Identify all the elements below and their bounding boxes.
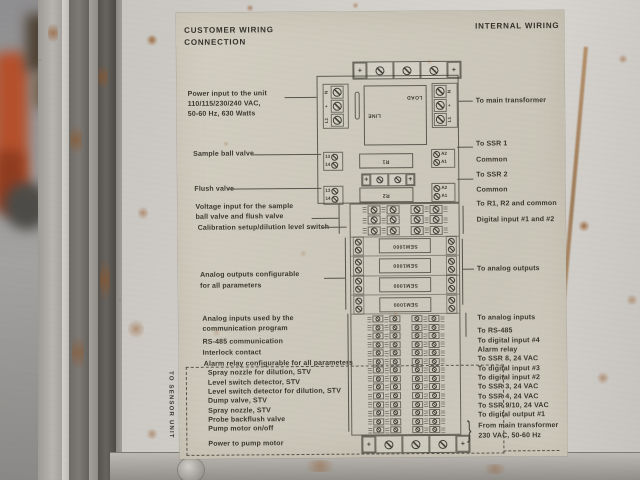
label-stain-3 xyxy=(212,329,220,337)
coil-label-a1: A1 xyxy=(441,194,447,199)
screw-icon xyxy=(355,247,362,254)
screw-terminal xyxy=(429,418,440,425)
screw-terminal xyxy=(428,392,439,399)
screw-icon xyxy=(431,359,436,364)
terminal-label-plus: + xyxy=(448,104,453,107)
to-ssr3-label: To SSR 3, 24 VAC xyxy=(478,383,539,391)
screw-terminal xyxy=(372,350,383,357)
to-ssr910-label: To SSR 9/10, 24 VAC xyxy=(478,402,549,410)
screw-icon xyxy=(375,66,384,75)
screw-icon xyxy=(415,402,420,407)
screw-terminal xyxy=(372,392,383,399)
screw-icon xyxy=(414,325,419,330)
screw-terminal xyxy=(390,409,401,416)
screw-terminal xyxy=(389,350,400,357)
screw-icon xyxy=(375,325,380,330)
contact-label-13: 13 xyxy=(325,189,330,194)
terminal-strip-dense-rows xyxy=(351,314,460,435)
screw-icon xyxy=(375,351,380,356)
isolator-module: SEM1000 xyxy=(351,275,459,295)
relay1-coil-block: A2 A1 xyxy=(431,149,455,168)
header-customer-wiring: CUSTOMER WIRING xyxy=(184,26,274,36)
screw-icon xyxy=(431,316,436,321)
screw-icon xyxy=(448,238,455,245)
screw-icon xyxy=(331,154,338,161)
screw-icon xyxy=(375,385,380,390)
screw-terminal xyxy=(372,384,383,391)
screw-terminal xyxy=(410,205,423,214)
screw-terminal xyxy=(389,384,400,391)
screw-terminal xyxy=(428,341,439,348)
screw-icon xyxy=(375,334,380,339)
sensor-item-3: Dump valve, STV xyxy=(208,397,267,405)
alarm-relay-label: Alarm relay xyxy=(478,346,518,354)
isolator-module-label: SEM1000 xyxy=(393,262,418,268)
screw-icon xyxy=(414,376,419,381)
terminal-label-n: N xyxy=(325,91,330,94)
power-module-body: LINE LOAD xyxy=(364,85,427,145)
seam-fitting xyxy=(178,458,204,480)
screw-icon xyxy=(448,277,455,284)
screw-icon xyxy=(414,393,419,398)
screw-icon xyxy=(392,325,397,330)
screw-terminal xyxy=(429,226,442,235)
screw-terminal xyxy=(410,226,423,235)
label-stain-2 xyxy=(300,250,307,257)
screw-icon xyxy=(392,342,397,347)
screw-icon xyxy=(429,65,438,74)
screw-terminal xyxy=(410,215,423,224)
screw-icon xyxy=(375,317,380,322)
screw-icon xyxy=(392,359,397,364)
digital-input-1-2-label: Digital input #1 and #2 xyxy=(477,216,555,224)
screw-icon xyxy=(436,101,445,110)
screw-icon xyxy=(414,333,419,338)
screw-icon xyxy=(392,368,397,373)
screw-terminal xyxy=(411,324,422,331)
terminal-row xyxy=(352,425,460,434)
contact-label-13: 13 xyxy=(325,155,330,160)
power-to-pump-motor-label: Power to pump motor xyxy=(208,440,283,448)
screw-terminal xyxy=(367,205,380,214)
screw-terminal xyxy=(411,349,422,356)
screw-terminal xyxy=(373,410,384,417)
terminal-label-l1: L1 xyxy=(325,118,330,123)
rust-spot-1 xyxy=(146,34,158,46)
screw-icon xyxy=(448,304,455,311)
bottom-terminal-strip xyxy=(361,435,470,454)
rust-seam-1 xyxy=(300,460,340,472)
screw-icon xyxy=(413,216,420,223)
screw-icon xyxy=(376,419,381,424)
line-label: LINE xyxy=(368,112,381,118)
bracket-analog-outputs-left xyxy=(345,238,347,310)
sensor-item-2: Level switch detector for dilution, STV xyxy=(208,388,341,397)
bracket-analog-outputs-right xyxy=(462,239,464,305)
screw-icon xyxy=(432,410,437,415)
endcap-plus-icon xyxy=(456,436,469,452)
endcap-plus-icon xyxy=(362,436,375,452)
dashed-bottom-right-segment xyxy=(503,450,559,451)
screw-terminal xyxy=(373,401,384,408)
screw-terminal xyxy=(372,358,383,365)
screw-terminal xyxy=(389,341,400,348)
wire-to-ssr1 xyxy=(457,147,473,148)
terminal-label-plus: + xyxy=(325,105,330,108)
screw-icon xyxy=(375,359,380,364)
screw-terminal xyxy=(429,205,442,214)
contact-label-14: 14 xyxy=(325,163,330,168)
screw-icon xyxy=(370,217,377,224)
screw-icon xyxy=(431,376,436,381)
screw-icon xyxy=(331,188,338,195)
calibration-label: Calibration setup/dilution level switch xyxy=(198,224,330,233)
rust-spot-10 xyxy=(618,54,628,64)
common2-label: Common xyxy=(476,186,507,194)
rust-spot-8 xyxy=(246,4,254,12)
screw-icon xyxy=(413,206,420,213)
screw-terminal xyxy=(386,226,399,235)
screw-icon xyxy=(392,376,397,381)
screw-terminal xyxy=(389,332,400,339)
screw-icon xyxy=(431,350,436,355)
screw-icon xyxy=(448,266,455,273)
wire-calibration xyxy=(322,227,347,228)
screw-icon xyxy=(375,342,380,347)
screw-terminal xyxy=(429,436,456,452)
coil-label-a2: A2 xyxy=(441,186,447,191)
screw-terminal xyxy=(402,436,429,452)
screw-terminal xyxy=(372,324,383,331)
screw-icon xyxy=(376,402,381,407)
to-digital-output-1-label: To digital output #1 xyxy=(478,411,545,419)
screw-terminal xyxy=(372,375,383,382)
sensor-item-0: Spray nozzle for dilution, STV xyxy=(208,369,311,377)
photo-of-wiring-label-panel: CUSTOMER WIRING CONNECTION INTERNAL WIRI… xyxy=(0,0,640,480)
bracket-digital-right xyxy=(463,206,464,234)
screw-icon xyxy=(415,410,420,415)
screw-icon xyxy=(393,419,398,424)
screw-icon xyxy=(332,102,341,111)
screw-terminal xyxy=(412,418,423,425)
wire-to-ssr2 xyxy=(457,179,473,180)
to-sensor-unit-vertical-label: TO SENSOR UNIT xyxy=(167,371,174,453)
wire-analog-outputs xyxy=(324,278,345,279)
to-rs485-label: To RS-485 xyxy=(477,327,512,335)
screw-icon xyxy=(402,66,411,75)
screw-icon xyxy=(370,206,377,213)
screw-icon xyxy=(355,297,362,304)
screw-terminal xyxy=(386,205,399,214)
relay2-contact-block: 13 14 xyxy=(323,186,343,205)
relay1-label: R1 xyxy=(383,158,390,164)
load-label: LOAD xyxy=(407,94,423,100)
main-terminal-strip: SEM1000 SEM1000 SEM1000 SEM1000 xyxy=(350,203,462,436)
screw-terminal xyxy=(428,358,439,365)
screw-icon xyxy=(432,427,437,432)
to-analog-outputs-label: To analog outputs xyxy=(477,265,540,273)
screw-icon xyxy=(355,266,362,273)
interlock-contact-label: Interlock contact xyxy=(203,349,262,357)
isolator-module-label: SEM1000 xyxy=(393,301,418,307)
rust-spot-7 xyxy=(596,372,610,384)
wire-power-input xyxy=(285,97,317,98)
screw-icon xyxy=(431,325,436,330)
rust-spot-9 xyxy=(352,2,359,9)
screw-terminal xyxy=(428,366,439,373)
screw-terminal xyxy=(386,216,399,225)
isolator-module-label: SEM1000 xyxy=(393,282,418,288)
screw-icon xyxy=(448,285,455,292)
screw-terminal xyxy=(389,367,400,374)
screw-icon xyxy=(376,411,381,416)
screw-icon xyxy=(389,227,396,234)
label-stain-5 xyxy=(426,59,432,65)
screw-icon xyxy=(331,196,338,203)
screw-icon xyxy=(392,351,397,356)
to-r1-r2-common-label: To R1, R2 and common xyxy=(476,200,556,208)
screw-terminal xyxy=(428,315,439,322)
analog-outputs-line2: for all parameters xyxy=(200,282,262,290)
isolator-module: SEM1000 xyxy=(351,295,459,315)
screw-icon xyxy=(433,193,440,200)
screw-terminal xyxy=(411,392,422,399)
isolator-modules: SEM1000 SEM1000 SEM1000 SEM1000 xyxy=(351,236,460,315)
wiring-label: CUSTOMER WIRING CONNECTION INTERNAL WIRI… xyxy=(176,10,567,459)
screw-icon xyxy=(384,440,393,449)
header-connection: CONNECTION xyxy=(184,38,246,47)
common1-label: Common xyxy=(476,156,507,164)
screw-terminal xyxy=(428,324,439,331)
endcap-plus-icon xyxy=(406,174,414,185)
screw-icon xyxy=(431,342,436,347)
wire-flush-valve xyxy=(227,188,321,190)
screw-icon xyxy=(431,333,436,338)
screw-icon xyxy=(436,87,445,96)
screw-icon xyxy=(355,239,362,246)
screw-icon xyxy=(392,385,397,390)
coil-label-a1: A1 xyxy=(441,160,447,165)
screw-icon xyxy=(432,402,437,407)
screw-icon xyxy=(414,367,419,372)
screw-icon xyxy=(448,246,455,253)
relay1-contact-block: 13 14 xyxy=(323,152,343,171)
screw-terminal xyxy=(428,332,439,339)
terminal-label-l1: L1 xyxy=(448,117,453,122)
screw-icon xyxy=(433,151,440,158)
screw-icon xyxy=(355,278,362,285)
rust-spot-11 xyxy=(626,294,638,306)
screw-terminal xyxy=(389,358,400,365)
screw-terminal xyxy=(367,226,380,235)
screw-icon xyxy=(431,384,436,389)
screw-terminal xyxy=(390,426,401,433)
relay2-label: R2 xyxy=(383,192,390,198)
screw-icon xyxy=(436,115,445,124)
from-main-transformer-line2: 230 VAC, 50-60 Hz xyxy=(478,432,541,440)
from-main-transformer-line1: From main transformer xyxy=(478,422,558,430)
rust-spot-2 xyxy=(138,205,148,221)
wire-sample-valve xyxy=(251,154,321,156)
power-input-line2: 110/115/230/240 VAC, xyxy=(188,100,261,108)
screw-icon xyxy=(432,227,439,234)
screw-terminal xyxy=(390,401,401,408)
screw-terminal xyxy=(367,216,380,225)
power-module-slot xyxy=(355,92,360,120)
screw-terminal xyxy=(372,333,383,340)
label-stain-1 xyxy=(223,141,229,147)
relay2-body: R2 xyxy=(359,187,413,202)
relay1-body: R1 xyxy=(359,153,413,168)
screw-icon xyxy=(414,359,419,364)
isolator-module: SEM1000 xyxy=(351,256,459,276)
rs485-communication-label: RS-485 communication xyxy=(203,338,283,346)
sensor-item-5: Probe backflush valve xyxy=(208,416,285,424)
screw-terminal xyxy=(411,332,422,339)
to-main-transformer-label: To main transformer xyxy=(476,97,546,105)
screw-terminal xyxy=(389,392,400,399)
to-ssr8-label: To SSR 8, 24 VAC xyxy=(478,355,539,363)
voltage-input-line2: ball valve and flush valve xyxy=(196,213,284,221)
relay2-coil-block: A2 A1 xyxy=(431,183,455,202)
screw-terminal xyxy=(411,315,422,322)
analog-outputs-line1: Analog outputs configurable xyxy=(200,271,299,279)
screw-icon xyxy=(393,427,398,432)
screw-terminal xyxy=(429,401,440,408)
power-input-line1: Power input to the unit xyxy=(188,90,267,98)
screw-icon xyxy=(411,440,420,449)
to-digital-input-3-label: To digital input #3 xyxy=(478,365,540,373)
screw-icon xyxy=(415,427,420,432)
screw-icon xyxy=(331,162,338,169)
to-ssr2-label: To SSR 2 xyxy=(476,171,507,179)
screw-terminal xyxy=(372,341,383,348)
sensor-item-4: Spray nozzle, STV xyxy=(208,407,271,415)
screw-terminal xyxy=(411,358,422,365)
screw-terminal xyxy=(412,401,423,408)
screw-icon xyxy=(414,350,419,355)
screw-icon xyxy=(370,227,377,234)
screw-terminal xyxy=(411,341,422,348)
screw-terminal xyxy=(429,409,440,416)
screw-icon xyxy=(389,217,396,224)
terminal-strip-header-rows xyxy=(351,204,459,237)
screw-terminal xyxy=(373,418,384,425)
screw-icon xyxy=(433,185,440,192)
header-internal-wiring: INTERNAL WIRING xyxy=(475,22,559,31)
voltage-input-line1: Voltage input for the sample xyxy=(195,203,293,211)
wire-to-analog-outputs xyxy=(462,269,474,270)
bracket-analog-inputs-right xyxy=(465,313,466,337)
rust-spot-3 xyxy=(128,318,144,340)
screw-icon xyxy=(392,333,397,338)
screw-icon xyxy=(332,88,341,97)
screw-icon xyxy=(389,206,396,213)
to-analog-inputs-label: To analog inputs xyxy=(477,314,535,322)
screw-terminal xyxy=(411,384,422,391)
endcap-plus-icon xyxy=(362,174,370,185)
screw-icon xyxy=(448,296,455,303)
screw-terminal xyxy=(372,367,383,374)
screw-terminal xyxy=(372,315,383,322)
bracket-voltage-input xyxy=(339,204,340,234)
screw-terminal xyxy=(429,215,442,224)
analog-inputs-line1: Analog inputs used by the xyxy=(202,315,293,323)
screw-terminal xyxy=(429,426,440,433)
screw-icon xyxy=(375,376,380,381)
screw-icon xyxy=(355,258,362,265)
to-ssr1-label: To SSR 1 xyxy=(476,140,507,148)
contact-label-14: 14 xyxy=(325,197,330,202)
screw-icon xyxy=(393,410,398,415)
sensor-item-6: Pump motor on/off xyxy=(208,425,273,433)
screw-terminal xyxy=(428,383,439,390)
screw-icon xyxy=(431,393,436,398)
sample-ball-valve-label: Sample ball valve xyxy=(193,150,254,158)
screw-icon xyxy=(415,419,420,424)
screw-icon xyxy=(375,368,380,373)
screw-icon xyxy=(431,367,436,372)
terminal-label-n: N xyxy=(448,90,453,93)
screw-terminal xyxy=(412,409,423,416)
rust-seam-2 xyxy=(480,464,510,474)
relay-strip-1 xyxy=(361,173,415,186)
screw-icon xyxy=(355,286,362,293)
screw-icon xyxy=(376,176,383,183)
screw-icon xyxy=(393,402,398,407)
screw-icon xyxy=(448,258,455,265)
rust-spot-4 xyxy=(146,428,158,440)
screw-icon xyxy=(332,116,341,125)
screw-icon xyxy=(375,393,380,398)
isolator-module: SEM1000 xyxy=(351,237,459,257)
screw-icon xyxy=(432,216,439,223)
coil-label-a2: A2 xyxy=(441,152,447,157)
label-stain-4 xyxy=(392,311,398,317)
screw-icon xyxy=(413,227,420,234)
screw-terminal xyxy=(428,349,439,356)
power-right-terminal-block: N + L1 xyxy=(432,83,458,128)
sensor-item-1: Level switch detector, STV xyxy=(208,379,300,387)
screw-terminal xyxy=(428,375,439,382)
screw-terminal xyxy=(390,418,401,425)
screw-icon xyxy=(414,316,419,321)
screw-icon xyxy=(392,393,397,398)
screw-icon xyxy=(394,176,401,183)
terminal-row xyxy=(351,204,459,215)
isolator-module-label: SEM1000 xyxy=(392,243,417,249)
to-ssr4-label: To SSR 4, 24 VAC xyxy=(478,393,539,401)
screw-terminal xyxy=(373,427,384,434)
screw-terminal xyxy=(389,324,400,331)
to-digital-input-2-label: To digital input #2 xyxy=(478,374,540,382)
rust-spot-5 xyxy=(578,220,590,232)
screw-terminal xyxy=(411,375,422,382)
screw-icon xyxy=(433,159,440,166)
screw-terminal xyxy=(412,426,423,433)
screw-terminal xyxy=(411,366,422,373)
screw-icon xyxy=(376,428,381,433)
screw-icon xyxy=(355,305,362,312)
screw-icon xyxy=(414,342,419,347)
screw-icon xyxy=(432,206,439,213)
screw-icon xyxy=(432,419,437,424)
wire-voltage-input xyxy=(312,218,339,219)
screw-icon xyxy=(414,385,419,390)
power-left-terminal-block: N + L1 xyxy=(323,84,349,129)
power-input-line3: 50-60 Hz, 630 Watts xyxy=(188,110,256,118)
to-digital-input-4-label: To digital input #4 xyxy=(478,337,540,345)
